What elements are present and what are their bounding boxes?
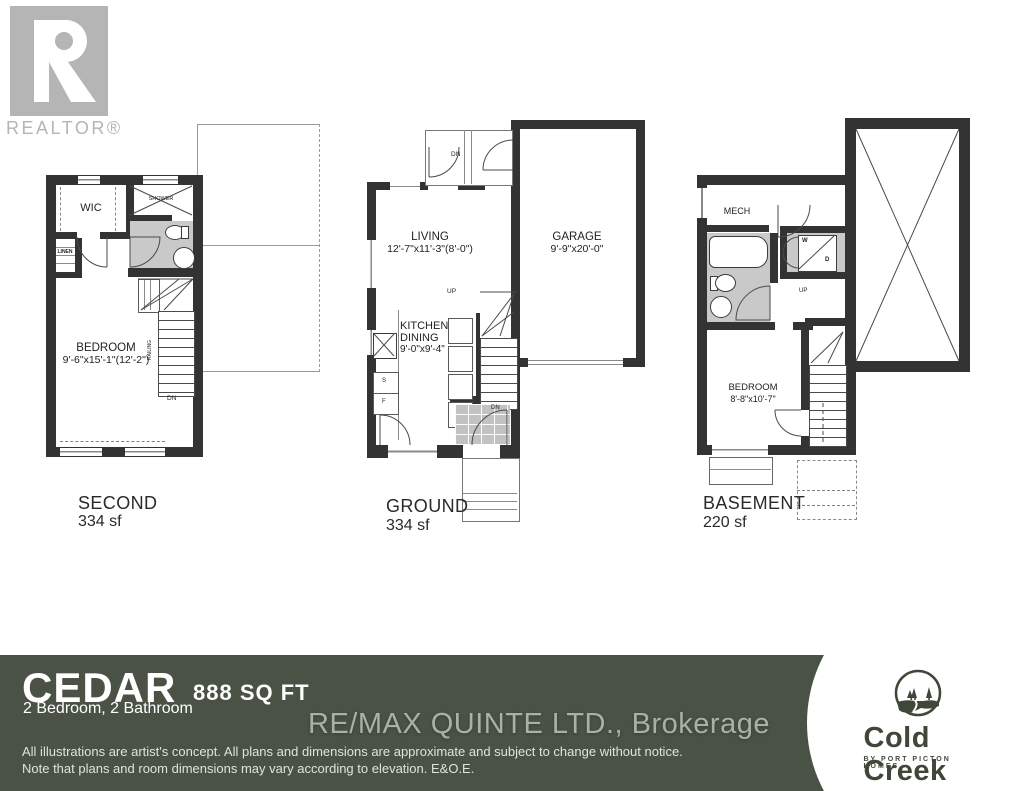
plan-basement: MECH BEDROOM 8'-8"x10'-7" UP W D [697, 118, 970, 530]
closet-rod [60, 187, 61, 231]
wall [46, 175, 56, 457]
plan-area-ground: 334 sf [386, 517, 430, 535]
entry-door-opening [463, 445, 500, 458]
stairs [158, 311, 195, 397]
stair-line [144, 280, 145, 310]
stair-wall [801, 330, 809, 410]
total-area: 888 SQ FT [193, 680, 310, 706]
stairs [809, 365, 847, 447]
wall [437, 445, 463, 458]
roof-ridge-line [198, 245, 319, 246]
wall [56, 232, 77, 239]
bedroom-door-arc [775, 410, 801, 436]
down-label: DN [167, 395, 176, 402]
plan-title-ground: GROUND [386, 496, 468, 517]
room-label-shower: SHOWER [149, 196, 174, 202]
wall [46, 175, 203, 185]
washer-label: W [802, 238, 808, 245]
plan-ground: LIVING 12'-7"x11'-3"(8'-0") GARAGE 9'-9"… [367, 120, 645, 520]
coldcreek-tagline: BY PORT PICTON HOMES [864, 756, 971, 770]
wall [100, 232, 134, 239]
wall [780, 226, 845, 233]
plan-area-second: 334 sf [78, 513, 122, 531]
bed-bath-config: 2 Bedroom, 2 Bathroom [23, 700, 193, 718]
stove-label: S [382, 378, 386, 385]
porch-step-line [464, 130, 465, 184]
window-header-dashed [60, 441, 165, 442]
window [78, 176, 100, 184]
wall [707, 322, 775, 330]
wall [707, 225, 769, 232]
window [367, 240, 376, 288]
coldcreek-icon [893, 668, 943, 718]
railing-label: RAILING [148, 340, 154, 360]
room-label-kitchen: KITCHEN [400, 320, 448, 332]
bathtub [709, 236, 768, 268]
room-label-bedroom: BEDROOM [728, 383, 777, 394]
toilet [715, 274, 736, 292]
window-well [709, 457, 773, 485]
up-label: UP [799, 288, 807, 295]
closet-rod [115, 187, 116, 231]
wall [367, 445, 388, 458]
wall [845, 118, 856, 372]
plan-area-basement: 220 sf [703, 514, 747, 532]
wall [780, 226, 787, 279]
wall [959, 118, 970, 372]
room-label-wic: WIC [80, 202, 101, 214]
stairs [480, 338, 518, 410]
room-dims-living: 12'-7"x11'-3"(8'-0") [387, 244, 473, 256]
room-dims-bedroom: 8'-8"x10'-7" [730, 394, 775, 404]
disclaimer-line-1: All illustrations are artist's concept. … [22, 744, 683, 759]
fridge [373, 393, 399, 415]
plan-title-second: SECOND [78, 493, 157, 514]
wall [697, 175, 845, 185]
room-label-mech: MECH [724, 206, 751, 216]
realtor-logo [10, 6, 108, 116]
kitchen-sink [373, 333, 397, 359]
floorplan-sheet: REALTOR® [0, 0, 1024, 791]
wall [845, 361, 970, 372]
realtor-wordmark: REALTOR® [6, 118, 123, 139]
closet-door-arc [380, 415, 410, 445]
room-label-living: LIVING [411, 231, 449, 244]
wall [770, 233, 778, 283]
island-cabinet [448, 318, 473, 344]
room-label-bedroom: BEDROOM [76, 342, 135, 355]
down-label-entry: DN [491, 405, 500, 412]
linen-shelf [56, 247, 75, 248]
wall [367, 182, 376, 458]
disclaimer-line-2: Note that plans and room dimensions may … [22, 761, 474, 776]
room-label-garage: GARAGE [552, 231, 601, 244]
porch-outline [425, 130, 513, 186]
up-label: UP [447, 288, 456, 295]
stair-landing [138, 279, 160, 313]
wall [845, 118, 970, 129]
brokerage-watermark: RE/MAX QUINTE LTD., Brokerage [308, 708, 770, 741]
wall [636, 120, 645, 367]
realtor-r-icon [10, 6, 108, 116]
window [390, 183, 420, 190]
dashed-line [797, 505, 855, 506]
porch-step-line [463, 493, 517, 494]
unexcavated-x [856, 129, 959, 361]
sink [710, 296, 732, 318]
island-cabinet [448, 346, 473, 372]
down-label-porch: DN [451, 151, 460, 158]
porch-step-line [471, 130, 472, 184]
dashed-line [797, 490, 855, 491]
wall [697, 445, 712, 455]
wall [511, 120, 645, 129]
sink [173, 247, 195, 269]
room-dims-bedroom: 9'-6"x15'-1"(12'-2") [63, 355, 150, 367]
stair-line [150, 280, 151, 310]
window [60, 448, 102, 456]
fridge-label: F [382, 399, 386, 406]
window [143, 176, 178, 184]
stair-wall [801, 436, 809, 455]
porch-step-line [463, 509, 517, 510]
island-cabinet [448, 374, 473, 400]
garage-door [528, 358, 623, 367]
dryer-label: D [825, 257, 829, 264]
window [697, 188, 707, 218]
room-dims-garage: 9'-9"x20'-0" [551, 244, 604, 256]
linen-shelf [56, 263, 75, 264]
roof-outline [197, 124, 320, 372]
wall [805, 318, 845, 326]
room-label-dining: DINING [400, 332, 439, 344]
wall [56, 272, 82, 278]
porch-step-line [463, 501, 517, 502]
window [388, 446, 437, 457]
window [125, 448, 165, 456]
wall [500, 445, 520, 458]
entry-tile-floor [455, 404, 510, 445]
plan-second: WIC SHOWER LINEN BEDROOM 9'-6"x15'-1"(12… [46, 175, 203, 457]
wall [128, 268, 193, 277]
plan-title-basement: BASEMENT [703, 493, 805, 514]
wall [623, 358, 645, 367]
stair-winders [811, 332, 843, 363]
front-porch-outline [462, 458, 520, 522]
wall [780, 272, 845, 279]
room-dims-kitchen: 9'-0"x9'-4" [400, 344, 445, 355]
coldcreek-wordmark: Cold Creek [864, 722, 971, 788]
room-label-linen: LINEN [58, 250, 73, 256]
window-well-line [709, 469, 771, 470]
window [712, 446, 768, 454]
toilet-tank [181, 226, 189, 239]
